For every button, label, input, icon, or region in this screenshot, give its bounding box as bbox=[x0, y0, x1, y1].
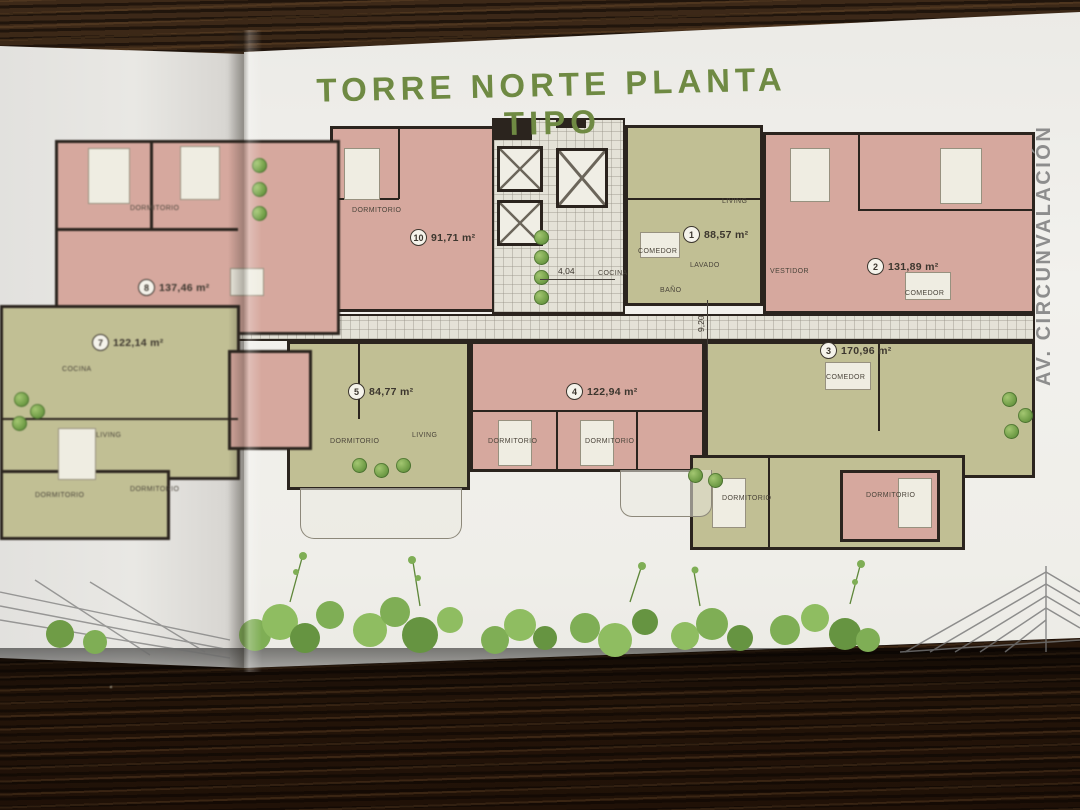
unit-number-badge: 7 bbox=[92, 334, 109, 351]
unit-number-badge: 8 bbox=[138, 279, 155, 296]
unit-area: 122,14 m² bbox=[113, 337, 164, 349]
photo-of-floorplan-brochure: { "page": { "title": "TORRE NORTE PLANTA… bbox=[0, 0, 1080, 810]
unit-area: 137,46 m² bbox=[159, 282, 210, 294]
bed bbox=[180, 146, 220, 200]
interior-wall bbox=[58, 228, 238, 231]
street-label: AV. CIRCUNVALACIÓN bbox=[1033, 86, 1056, 386]
room-label: DORMITORIO bbox=[35, 492, 84, 499]
unit-label-7: 7 122,14 m² bbox=[92, 334, 164, 351]
room-label: COCINA bbox=[62, 366, 92, 373]
tree-marker bbox=[12, 416, 27, 431]
room-label: DORMITORIO bbox=[130, 486, 179, 493]
tree-marker bbox=[30, 404, 45, 419]
apartment-unit-7 bbox=[0, 305, 240, 480]
spacer bbox=[110, 686, 112, 688]
interior-wall bbox=[150, 142, 153, 230]
room-label: DORMITORIO bbox=[130, 205, 179, 212]
foliage-railing-graphic bbox=[0, 530, 1080, 680]
page-title: TORRE NORTE PLANTA TIPO bbox=[281, 59, 823, 148]
room-label: LIVING bbox=[96, 432, 121, 439]
fold-crease bbox=[228, 30, 262, 672]
bed bbox=[58, 428, 96, 480]
unit-label-8: 8 137,46 m² bbox=[138, 279, 210, 296]
tree-marker bbox=[14, 392, 29, 407]
foliage-and-railing bbox=[0, 530, 1080, 680]
bed bbox=[88, 148, 130, 204]
